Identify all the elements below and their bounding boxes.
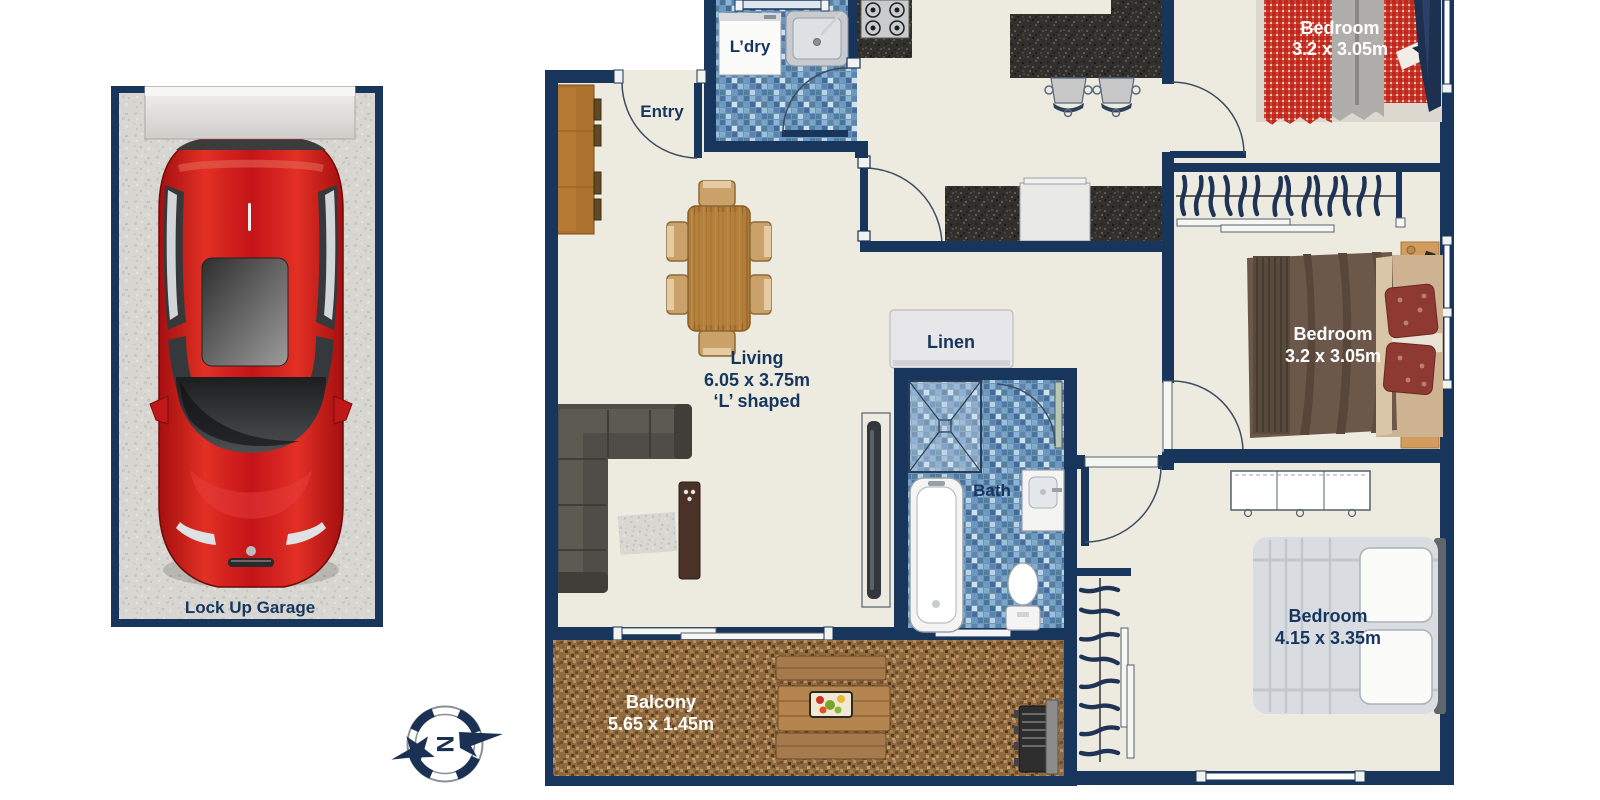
svg-text:‘L’ shaped: ‘L’ shaped bbox=[713, 391, 800, 411]
svg-text:Balcony: Balcony bbox=[626, 692, 696, 712]
svg-text:Living: Living bbox=[731, 348, 784, 368]
svg-text:Entry: Entry bbox=[640, 102, 684, 121]
svg-text:3.2 x 3.05m: 3.2 x 3.05m bbox=[1285, 346, 1381, 366]
svg-text:N: N bbox=[431, 735, 458, 752]
svg-text:Lock Up Garage: Lock Up Garage bbox=[185, 598, 315, 617]
svg-text:Bedroom: Bedroom bbox=[1300, 18, 1379, 38]
svg-text:5.65 x 1.45m: 5.65 x 1.45m bbox=[608, 714, 714, 734]
svg-text:Linen: Linen bbox=[927, 332, 975, 352]
svg-text:3.2 x 3.05m: 3.2 x 3.05m bbox=[1292, 39, 1388, 59]
svg-text:Bedroom: Bedroom bbox=[1288, 606, 1367, 626]
svg-text:6.05 x 3.75m: 6.05 x 3.75m bbox=[704, 370, 810, 390]
svg-text:4.15 x 3.35m: 4.15 x 3.35m bbox=[1275, 628, 1381, 648]
svg-text:Bedroom: Bedroom bbox=[1293, 324, 1372, 344]
svg-text:Bath: Bath bbox=[973, 481, 1011, 500]
svg-text:L’dry: L’dry bbox=[730, 37, 771, 56]
